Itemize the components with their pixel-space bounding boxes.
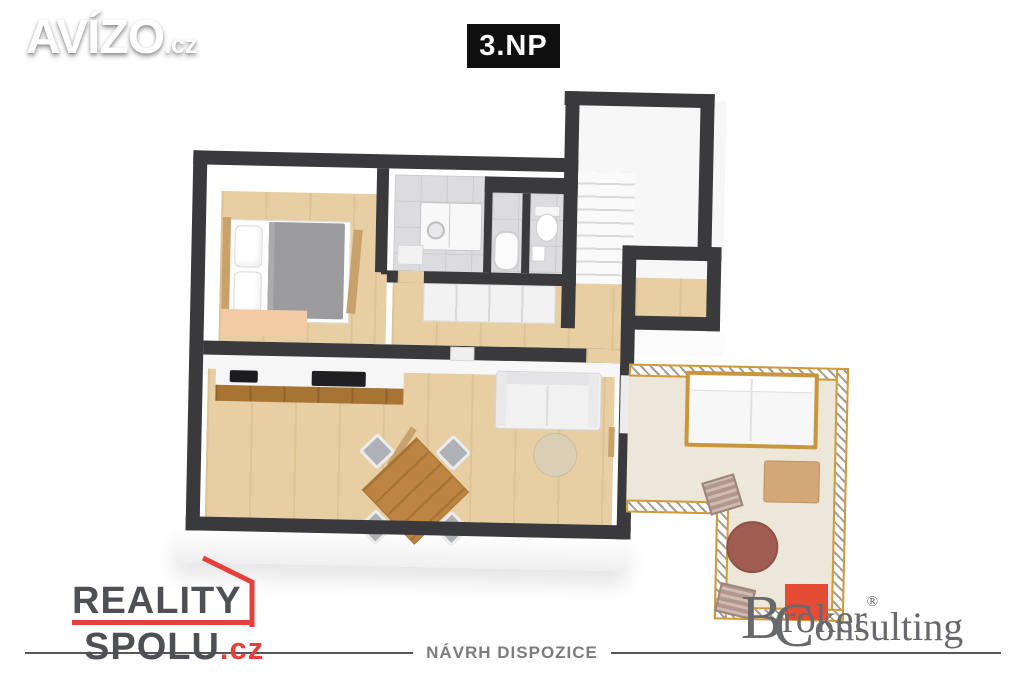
bathroom-door-opening — [398, 271, 424, 284]
bath-mat — [397, 245, 423, 266]
closet-floor — [635, 278, 707, 317]
wall-tub-wc-top — [485, 176, 578, 194]
avizo-logo-tld: .cz — [164, 31, 197, 59]
bedroom-rug — [221, 309, 308, 337]
floor-lamp-right — [608, 427, 615, 457]
outdoor-side-table — [763, 460, 820, 503]
floor-badge-label: 3.NP — [479, 30, 547, 63]
wc-sink — [531, 245, 545, 261]
floor-plan — [168, 78, 880, 653]
wall-closet-bottom — [630, 315, 720, 331]
avizo-logo: AVÍZO.cz — [26, 14, 197, 62]
hall-living-opening — [586, 349, 620, 364]
floor-badge: 3.NP — [467, 24, 560, 68]
bed-pillow-top — [234, 225, 263, 268]
broker-logo-c: C — [773, 592, 814, 660]
agency-logo-spolu: SPOLU — [84, 626, 220, 668]
agency-logo-roof-icon — [198, 551, 260, 631]
broker-consulting-logo: Broker® Consulting — [735, 578, 1024, 663]
broker-logo-onsulting: onsulting — [814, 604, 963, 649]
bathtub — [493, 231, 520, 272]
hall-door-panel — [450, 347, 474, 361]
plan-caption: NÁVRH DISPOZICE — [413, 642, 611, 664]
bedroom-door-opening — [373, 274, 386, 344]
agency-logo-line2: SPOLU.cz — [84, 628, 264, 666]
wall-tub-wc-divider — [521, 193, 531, 273]
kitchen-cooktop — [312, 371, 366, 387]
agency-logo-tld: .cz — [220, 631, 264, 666]
bed-blanket — [267, 222, 345, 320]
hall-wardrobe — [423, 283, 556, 324]
plan-base-skirt-right — [629, 329, 725, 357]
bed-pillow-bottom — [233, 271, 262, 314]
sofa-armrest-right — [588, 374, 599, 428]
sofa-armrest-left — [496, 372, 507, 426]
avizo-logo-text: AVÍZO — [26, 11, 164, 64]
sofa-back — [497, 372, 599, 386]
broker-logo-word2: Consulting — [773, 604, 963, 649]
wall-bedroom-right — [375, 168, 389, 272]
kitchen-sink — [230, 370, 258, 383]
plan-caption-text: NÁVRH DISPOZICE — [426, 643, 598, 662]
